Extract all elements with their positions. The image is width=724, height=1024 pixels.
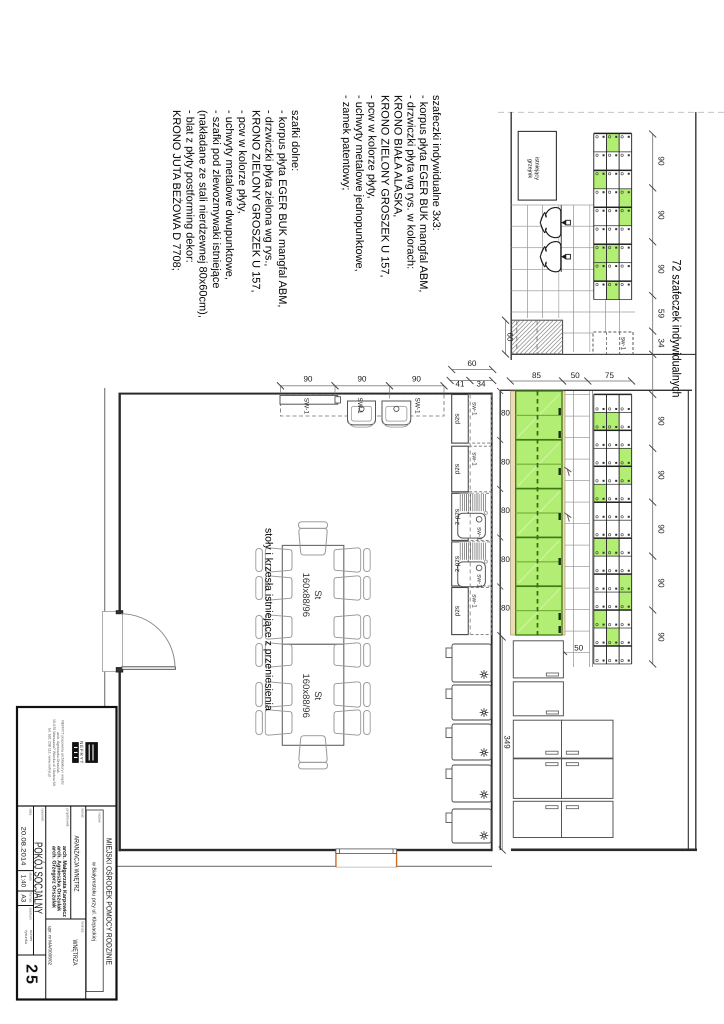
svg-text:grzejnik: grzejnik (527, 159, 534, 178)
svg-text:szafki dolne:: szafki dolne: (289, 110, 301, 171)
svg-text:nazwa: nazwa (98, 813, 102, 823)
svg-text:sw-1: sw-1 (476, 574, 483, 588)
svg-text:160x88/96: 160x88/96 (300, 674, 311, 718)
svg-text:w Białymstoku przy ul. Klepack: w Białymstoku przy ul. Klepackiej (91, 861, 97, 941)
svg-text:sw-1: sw-1 (471, 402, 478, 416)
svg-text:90: 90 (657, 210, 667, 220)
svg-text:arch. Agnieszka Orszulak: arch. Agnieszka Orszulak (56, 732, 60, 773)
svg-text:80: 80 (501, 506, 510, 515)
svg-text:59: 59 (657, 309, 667, 319)
svg-text:sw-1: sw-1 (471, 594, 478, 608)
svg-text:349: 349 (503, 735, 512, 749)
svg-text:szd-z: szd-z (454, 556, 461, 573)
svg-text:KRONO JUTA BEŻOWA D 7708;: KRONO JUTA BEŻOWA D 7708; (170, 110, 183, 271)
svg-text:90: 90 (358, 375, 367, 384)
svg-text:A3: A3 (20, 894, 27, 902)
svg-text:85: 85 (532, 371, 541, 380)
svg-text:- korpus płyta EGER BUK mangfa: - korpus płyta EGER BUK mangfal ABM, (417, 95, 429, 292)
svg-text:data: data (29, 809, 33, 816)
svg-text:WNĘTRZA: WNĘTRZA (71, 940, 78, 966)
svg-text:rysunku: rysunku (24, 930, 29, 944)
svg-text:SW-1: SW-1 (356, 398, 363, 415)
svg-text:34: 34 (657, 338, 667, 348)
svg-text:branża:: branża: (81, 922, 85, 934)
svg-text:temat:: temat: (81, 809, 85, 819)
svg-text:arch. Małgorzata Karpowicz: arch. Małgorzata Karpowicz (61, 846, 67, 917)
svg-text:NEFRYT: NEFRYT (79, 741, 84, 764)
svg-text:160x88/96: 160x88/96 (300, 573, 311, 617)
svg-text:St: St (312, 590, 323, 599)
svg-text:- drzwiczki płyta wg rys. w ko: - drzwiczki płyta wg rys. w kolorach: (404, 95, 416, 269)
svg-text:format: format (29, 893, 33, 903)
svg-text:istniejący: istniejący (534, 157, 541, 180)
svg-text:szd-z: szd-z (454, 509, 461, 526)
svg-text:arch. Agnieszka Orszulak: arch. Agnieszka Orszulak (56, 846, 62, 911)
svg-text:60: 60 (468, 359, 477, 368)
svg-text:szd: szd (454, 606, 461, 617)
svg-text:50: 50 (571, 371, 580, 380)
svg-text:- uchwyty metalowe jednopunkto: - uchwyty metalowe jednopunktowe, (353, 95, 365, 272)
svg-text:80: 80 (501, 458, 510, 467)
svg-text:90: 90 (412, 375, 421, 384)
svg-text:90: 90 (657, 632, 667, 642)
svg-text:szd: szd (454, 414, 461, 425)
svg-text:SW-1: SW-1 (414, 398, 421, 415)
svg-text:- korpus płyta EGER BUK mangfa: - korpus płyta EGER BUK mangfal ABM, (276, 110, 288, 307)
svg-text:- pcw w kolorze płyty,: - pcw w kolorze płyty, (236, 110, 248, 214)
svg-text:sw-1: sw-1 (620, 337, 627, 351)
svg-text:stadium: stadium (29, 908, 33, 920)
svg-text:sw-1: sw-1 (476, 527, 483, 541)
svg-text:rysunek:: rysunek: (41, 809, 45, 822)
svg-text:stoły i krzesła istniejące z p: stoły i krzesła istniejące z przeniesien… (263, 528, 275, 711)
svg-text:SW-1: SW-1 (303, 398, 310, 415)
svg-text:80: 80 (501, 604, 510, 613)
svg-text:szd: szd (454, 464, 461, 475)
svg-text:- uchwyty metalowe dwupunktowe: - uchwyty metalowe dwupunktowe, (223, 110, 235, 280)
svg-text:90: 90 (657, 416, 667, 426)
svg-text:sw-1: sw-1 (471, 452, 478, 466)
svg-text:90: 90 (657, 524, 667, 534)
svg-text:projektował:: projektował: (66, 809, 70, 828)
svg-text:St: St (312, 691, 323, 700)
svg-text:MIEJSKI OŚRODEK POMOCY RODZINI: MIEJSKI OŚRODEK POMOCY RODZINIE (105, 838, 114, 965)
svg-text:szafeczki indywidualne 3x3:: szafeczki indywidualne 3x3: (430, 95, 442, 231)
svg-text:- pcw w kolorze płyty,: - pcw w kolorze płyty, (366, 95, 378, 199)
svg-text:tel. 501 238 112, www.nefryt.: tel. 501 238 112, www.nefryt.pl (48, 728, 52, 777)
svg-text:- szafki pod zlewozmywaki istn: - szafki pod zlewozmywaki istniejące (210, 110, 222, 289)
svg-text:41: 41 (456, 380, 465, 389)
svg-text:90: 90 (304, 375, 313, 384)
svg-text:34: 34 (477, 380, 486, 389)
svg-text:- blat z płyty postforming dek: - blat z płyty postforming dekor: (183, 110, 195, 263)
svg-text:90: 90 (657, 156, 667, 166)
svg-text:numer: numer (29, 930, 34, 942)
svg-text:KRONO BIAŁA ALASKA,: KRONO BIAŁA ALASKA, (391, 95, 403, 217)
svg-text:NEFRYT pracownia architektury: NEFRYT pracownia architektury i wnętrz (61, 720, 65, 785)
svg-text:60: 60 (506, 333, 515, 342)
svg-text:1:40: 1:40 (20, 875, 27, 888)
svg-text:50: 50 (574, 644, 583, 653)
svg-text:(nakładane ze stali nierdzewne: (nakładane ze stali nierdzewnej 80x60cm)… (197, 110, 209, 318)
svg-text:80: 80 (501, 555, 510, 564)
svg-text:ARANŻACJA WNĘTRZ: ARANŻACJA WNĘTRZ (73, 836, 81, 892)
svg-text:75: 75 (605, 371, 614, 380)
svg-text:skala: skala (29, 873, 33, 881)
svg-text:80: 80 (501, 409, 510, 418)
svg-text:20.08.2014: 20.08.2014 (20, 827, 27, 867)
svg-text:KRONO ZIELONY GROSZEK U 157,: KRONO ZIELONY GROSZEK U 157, (379, 95, 391, 278)
svg-text:- drzwiczki płyta zielona wg r: - drzwiczki płyta zielona wg rys., (263, 110, 275, 267)
svg-text:90: 90 (657, 578, 667, 588)
svg-text:72 szafeczek indywidualnych: 72 szafeczek indywidualnych (670, 260, 684, 398)
svg-text:arch. Grzegorz Orszulak: arch. Grzegorz Orszulak (50, 846, 56, 908)
svg-text:KRONO ZIELONY GROSZEK U 157,: KRONO ZIELONY GROSZEK U 157, (249, 110, 261, 293)
svg-text:- zamek patentowy;: - zamek patentowy; (340, 95, 352, 190)
svg-text:25: 25 (23, 964, 40, 986)
svg-text:90: 90 (657, 264, 667, 274)
svg-text:upr. nr MA/0008/02: upr. nr MA/0008/02 (48, 926, 53, 966)
svg-text:90: 90 (657, 470, 667, 480)
svg-text:15-075 Warszawa? Wiecka ul. Uk: 15-075 Warszawa? Wiecka ul. Ukośna 5A (52, 719, 56, 787)
